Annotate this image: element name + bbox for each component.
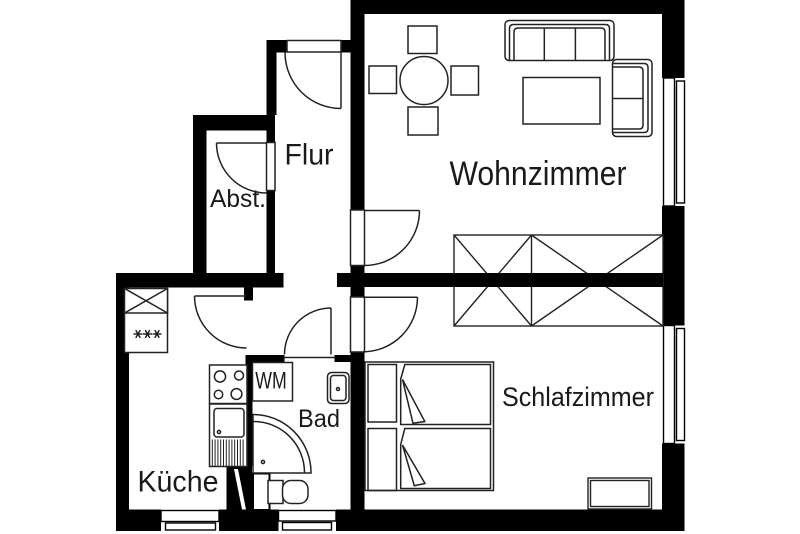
svg-text:Wohnzimmer: Wohnzimmer xyxy=(450,155,627,193)
svg-text:Flur: Flur xyxy=(285,138,334,171)
svg-text:Bad: Bad xyxy=(298,405,340,433)
svg-text:Schlafzimmer: Schlafzimmer xyxy=(502,382,654,412)
svg-text:WM: WM xyxy=(255,368,287,395)
svg-text:Abst.: Abst. xyxy=(210,185,266,213)
svg-text:Küche: Küche xyxy=(138,465,219,498)
